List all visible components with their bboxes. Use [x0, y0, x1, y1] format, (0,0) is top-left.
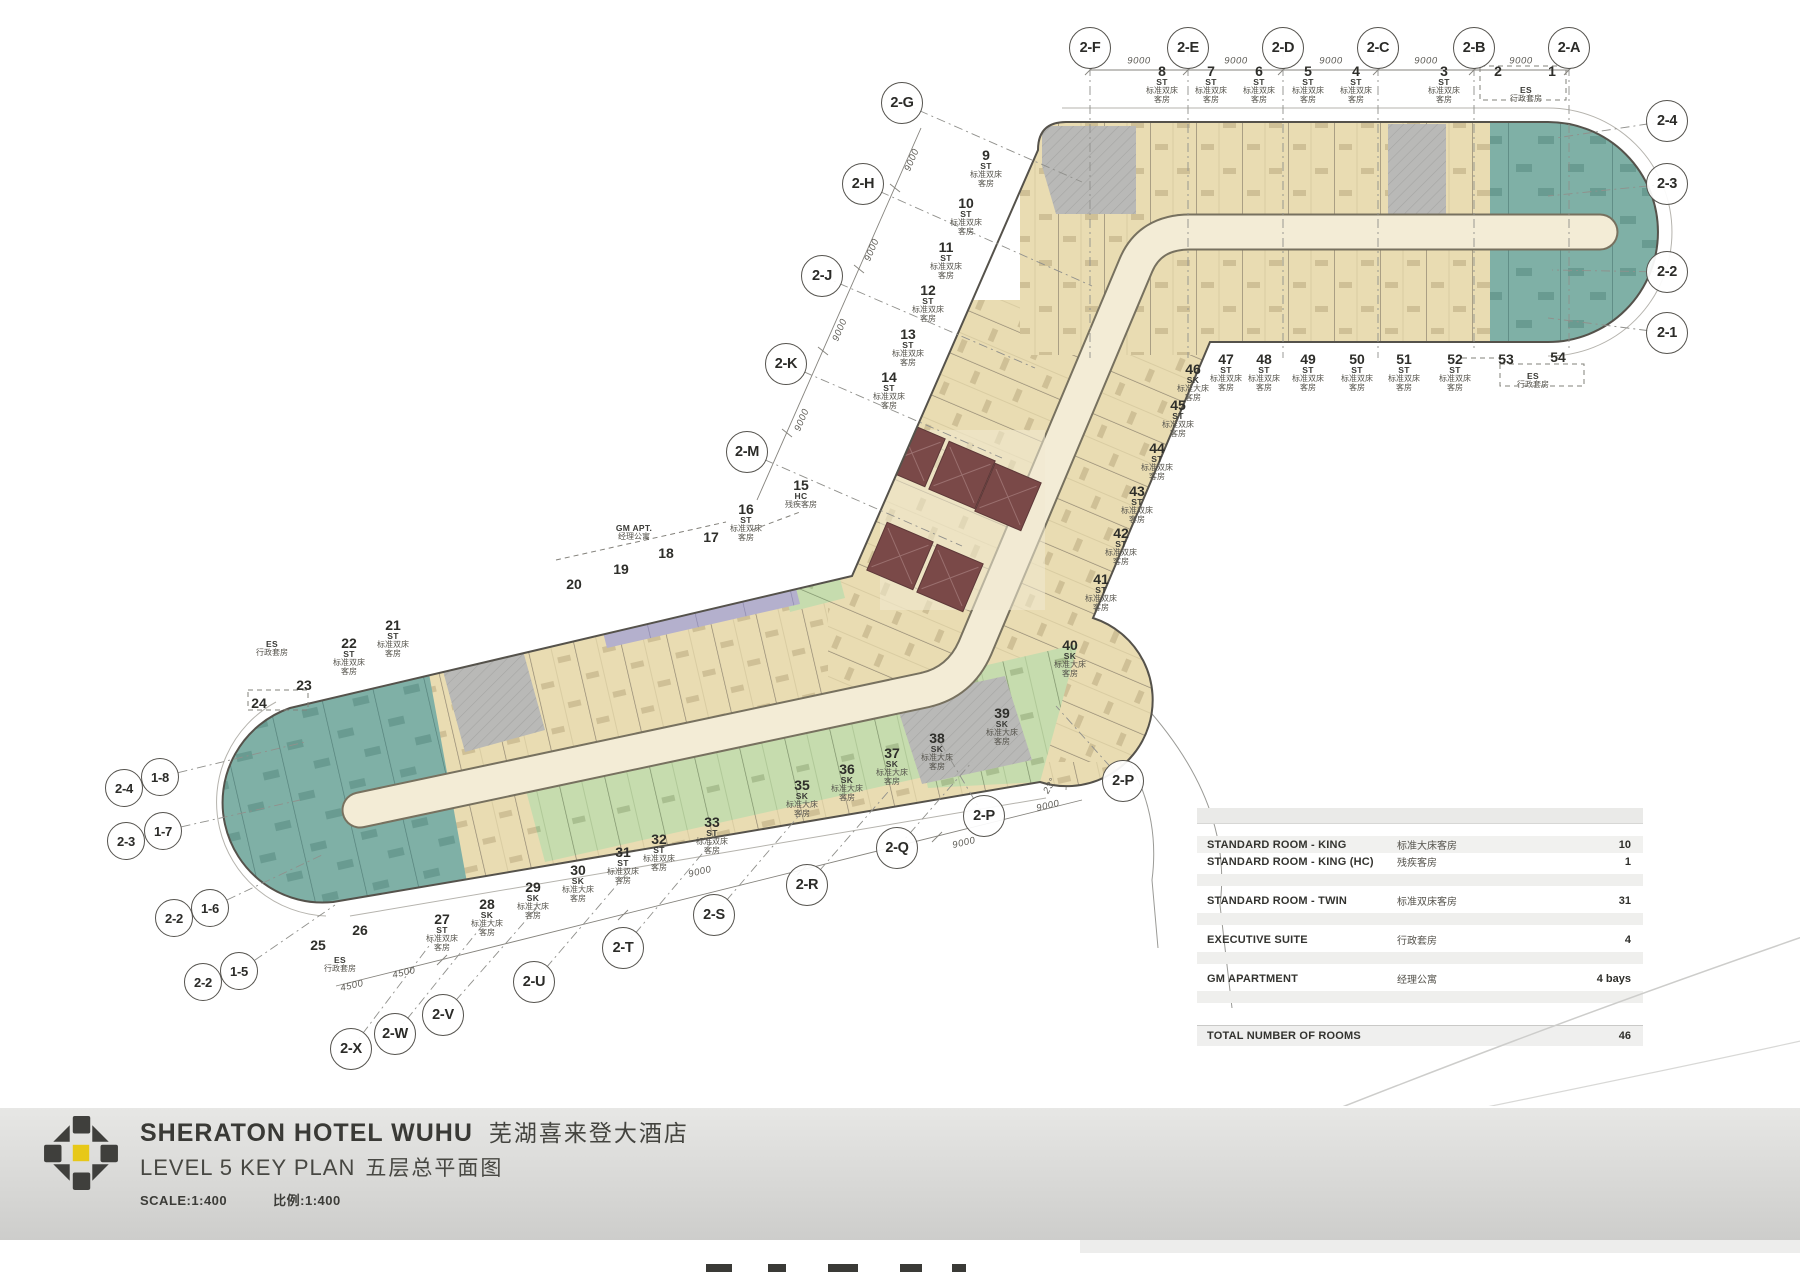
room-type-cn: 标准双床客房 [1425, 87, 1463, 105]
room-callout: 27ST标准双床客房 [423, 912, 461, 953]
room-callout: GM APT.经理公寓 [615, 524, 653, 541]
room-type-cn: 标准大床客房 [873, 769, 911, 787]
legend-room-type-en: STANDARD ROOM - TWIN [1207, 895, 1397, 907]
room-callout: 40SK标准大床客房 [1051, 638, 1089, 679]
room-callout: 9ST标准双床客房 [967, 148, 1005, 189]
room-callout: 18 [658, 546, 674, 560]
room-callout: 30SK标准大床客房 [559, 863, 597, 904]
room-number: 2 [1494, 64, 1502, 78]
room-callout: 6ST标准双床客房 [1240, 64, 1278, 105]
room-type-cn: 经理公寓 [615, 533, 653, 542]
room-number: 50 [1338, 352, 1376, 366]
room-number: 22 [330, 636, 368, 650]
room-callout: 21ST标准双床客房 [374, 618, 412, 659]
room-type-cn: 标准双床客房 [1289, 87, 1327, 105]
sheraton-logo-icon [42, 1114, 120, 1192]
grid-bubble: 2-4 [105, 769, 143, 807]
room-callout: 10ST标准双床客房 [947, 196, 985, 237]
room-number: 20 [566, 577, 582, 591]
room-number: 31 [604, 845, 642, 859]
grid-bubble: 2-3 [1646, 163, 1688, 205]
room-type-cn: 标准双床客房 [1245, 375, 1283, 393]
legend-header-band [1197, 808, 1643, 824]
dimension-text: 9000 [1509, 56, 1533, 67]
room-number: 13 [889, 327, 927, 341]
room-callout: 22ST标准双床客房 [330, 636, 368, 677]
room-callout: 36SK标准大床客房 [828, 762, 866, 803]
room-number: 49 [1289, 352, 1327, 366]
room-callout: 32ST标准双床客房 [640, 832, 678, 873]
legend-room-type-cn: 标准双床客房 [1397, 893, 1457, 908]
grid-bubble: 2-K [765, 343, 807, 385]
room-number: 23 [296, 678, 312, 692]
room-type-cn: 标准双床客房 [374, 641, 412, 659]
room-callout: 26 [352, 923, 368, 937]
room-callout: 54 [1550, 350, 1566, 364]
grid-bubble: 2-4 [1646, 100, 1688, 142]
room-number: 24 [251, 696, 267, 710]
room-callout: 11ST标准双床客房 [927, 240, 965, 281]
room-callout: 14ST标准双床客房 [870, 370, 908, 411]
room-type-cn: 标准双床客房 [423, 935, 461, 953]
grid-bubble: 2-1 [1646, 312, 1688, 354]
grid-bubble: 2-S [693, 894, 735, 936]
grid-bubble: 2-H [842, 163, 884, 205]
room-number: 25 [310, 938, 326, 952]
room-number: 28 [468, 897, 506, 911]
room-callout: ES行政套房 [321, 956, 359, 973]
room-callout: 38SK标准大床客房 [918, 731, 956, 772]
legend-room-type-cn: 标准大床客房 [1397, 837, 1457, 852]
room-type-cn: 标准双床客房 [1338, 375, 1376, 393]
elevator-cores [867, 419, 1045, 611]
room-number: 36 [828, 762, 866, 776]
room-type-cn: 标准双床客房 [1143, 87, 1181, 105]
room-number: 14 [870, 370, 908, 384]
room-callout: 24 [251, 696, 267, 710]
room-number: 26 [352, 923, 368, 937]
room-type-cn: 标准双床客房 [1159, 421, 1197, 439]
room-number: 47 [1207, 352, 1245, 366]
room-callout: 13ST标准双床客房 [889, 327, 927, 368]
room-callout: 50ST标准双床客房 [1338, 352, 1376, 393]
plan-name-en: LEVEL 5 KEY PLAN [140, 1155, 355, 1180]
grid-bubble: 2-2 [184, 963, 222, 1001]
room-callout: 28SK标准大床客房 [468, 897, 506, 938]
room-type-cn: 行政套房 [321, 965, 359, 974]
room-number: 15 [782, 478, 820, 492]
room-number: 42 [1102, 526, 1140, 540]
room-number: 29 [514, 880, 552, 894]
room-number: 54 [1550, 350, 1566, 364]
room-number: 11 [927, 240, 965, 254]
room-number: 43 [1118, 484, 1156, 498]
dimension-text: 9000 [1414, 56, 1438, 67]
logo-yellow-center [73, 1145, 89, 1161]
room-number: 19 [613, 562, 629, 576]
room-number: 21 [374, 618, 412, 632]
grid-bubble: 2-M [726, 431, 768, 473]
room-type-cn: 标准双床客房 [1102, 549, 1140, 567]
grid-bubble: 1-6 [191, 889, 229, 927]
room-type-cn: 标准大床客房 [918, 754, 956, 772]
room-number: 44 [1138, 441, 1176, 455]
room-callout: 43ST标准双床客房 [1118, 484, 1156, 525]
legend-room-type-en: STANDARD ROOM - KING (HC) [1207, 856, 1397, 868]
room-type-cn: 标准大床客房 [983, 729, 1021, 747]
title-block: SHERATON HOTEL WUHU芜湖喜来登大酒店 LEVEL 5 KEY … [42, 1114, 689, 1209]
legend-spacer-band [1197, 874, 1643, 886]
room-type-cn: 标准大床客房 [559, 886, 597, 904]
room-callout: 33ST标准双床客房 [693, 815, 731, 856]
room-callout: 15HC残疾客房 [782, 478, 820, 510]
room-callout: 41ST标准双床客房 [1082, 572, 1120, 613]
room-type-cn: 标准双床客房 [1082, 595, 1120, 613]
room-callout: 29SK标准大床客房 [514, 880, 552, 921]
room-callout: 47ST标准双床客房 [1207, 352, 1245, 393]
grid-bubble: 2-B [1453, 27, 1495, 69]
room-number: 12 [909, 283, 947, 297]
room-number: 17 [703, 530, 719, 544]
room-callout: 12ST标准双床客房 [909, 283, 947, 324]
room-type-cn: 标准双床客房 [1192, 87, 1230, 105]
room-type-cn: 标准大床客房 [783, 801, 821, 819]
room-number: 39 [983, 706, 1021, 720]
room-type-cn: 行政套房 [1514, 381, 1552, 390]
room-type-cn: 标准双床客房 [1436, 375, 1474, 393]
grid-bubble: 2-T [602, 927, 644, 969]
room-callout: 39SK标准大床客房 [983, 706, 1021, 747]
grid-bubble: 2-C [1357, 27, 1399, 69]
room-callout: 37SK标准大床客房 [873, 746, 911, 787]
legend-row: STANDARD ROOM - KING标准大床客房10 [1197, 836, 1643, 853]
grid-bubble: 2-P [963, 795, 1005, 837]
grid-bubble: 2-R [786, 864, 828, 906]
grid-bubble: 2-P [1102, 760, 1144, 802]
room-number: 10 [947, 196, 985, 210]
room-callout: 4ST标准双床客房 [1337, 64, 1375, 105]
room-type-cn: 标准双床客房 [1385, 375, 1423, 393]
room-type-cn: 标准双床客房 [693, 838, 731, 856]
grid-bubble: 2-G [881, 82, 923, 124]
room-number: 35 [783, 778, 821, 792]
room-type-cn: 标准大床客房 [828, 785, 866, 803]
room-callout: 44ST标准双床客房 [1138, 441, 1176, 482]
service-zone-elbow [1042, 126, 1136, 214]
room-number: 53 [1498, 352, 1514, 366]
grid-bubble: 2-2 [1646, 251, 1688, 293]
room-callout: 42ST标准双床客房 [1102, 526, 1140, 567]
room-number: 40 [1051, 638, 1089, 652]
room-number: 48 [1245, 352, 1283, 366]
room-callout: 25 [310, 938, 326, 952]
room-number: 52 [1436, 352, 1474, 366]
room-callout: 5ST标准双床客房 [1289, 64, 1327, 105]
dimension-text: 9000 [1127, 56, 1151, 67]
room-type-cn: 标准大床客房 [514, 903, 552, 921]
grid-bubble: 2-3 [107, 822, 145, 860]
room-type-cn: 残疾客房 [782, 501, 820, 510]
room-number: 32 [640, 832, 678, 846]
grid-bubble: 2-D [1262, 27, 1304, 69]
room-type-cn: 标准双床客房 [870, 393, 908, 411]
room-type-cn: 行政套房 [253, 649, 291, 658]
room-type-cn: 标准双床客房 [947, 219, 985, 237]
room-type-cn: 标准双床客房 [1118, 507, 1156, 525]
room-number: 18 [658, 546, 674, 560]
room-type-cn: 标准双床客房 [1289, 375, 1327, 393]
room-callout: 35SK标准大床客房 [783, 778, 821, 819]
room-number: 30 [559, 863, 597, 877]
grid-bubble: 2-2 [155, 899, 193, 937]
room-number: 41 [1082, 572, 1120, 586]
room-number: 37 [873, 746, 911, 760]
room-type-cn: 标准大床客房 [468, 920, 506, 938]
room-number: 38 [918, 731, 956, 745]
room-callout: 3ST标准双床客房 [1425, 64, 1463, 105]
room-callout: 48ST标准双床客房 [1245, 352, 1283, 393]
room-callout: 31ST标准双床客房 [604, 845, 642, 886]
room-callout: 20 [566, 577, 582, 591]
legend-room-count: 10 [1619, 839, 1631, 851]
room-callout: 8ST标准双床客房 [1143, 64, 1181, 105]
room-number: 27 [423, 912, 461, 926]
room-callout: 51ST标准双床客房 [1385, 352, 1423, 393]
room-callout: 45ST标准双床客房 [1159, 398, 1197, 439]
grid-bubble: 2-E [1167, 27, 1209, 69]
room-callout: 7ST标准双床客房 [1192, 64, 1230, 105]
room-type-cn: 标准双床客房 [330, 659, 368, 677]
room-callout: ES行政套房 [1514, 372, 1552, 389]
room-number: 9 [967, 148, 1005, 162]
grid-bubble: 2-U [513, 961, 555, 1003]
stair-zone-top-wing [1388, 124, 1446, 216]
room-type-cn: 标准双床客房 [727, 525, 765, 543]
room-callout: 2 [1494, 64, 1502, 78]
grid-bubble: 2-V [422, 994, 464, 1036]
room-number: 16 [727, 502, 765, 516]
room-number: 1 [1548, 64, 1556, 78]
drawing-sheet: 2-F2-E2-D2-C2-B2-A2-42-32-22-12-G2-H2-J2… [0, 0, 1800, 1272]
legend-room-type-cn: 残疾客房 [1397, 854, 1437, 869]
room-type-cn: 标准双床客房 [1207, 375, 1245, 393]
grid-bubble: 2-J [801, 255, 843, 297]
room-type-cn: 标准双床客房 [1138, 464, 1176, 482]
hotel-name-en: SHERATON HOTEL WUHU [140, 1119, 473, 1147]
grid-bubble: 1-8 [141, 758, 179, 796]
room-number: 45 [1159, 398, 1197, 412]
room-type-cn: 标准双床客房 [967, 171, 1005, 189]
room-type-cn: 标准双床客房 [604, 868, 642, 886]
dimension-text: 9000 [1319, 56, 1343, 67]
legend-row: STANDARD ROOM - KING (HC)残疾客房1 [1197, 853, 1643, 870]
grid-bubble: 2-W [374, 1013, 416, 1055]
room-type-cn: 标准双床客房 [1240, 87, 1278, 105]
room-callout: 49ST标准双床客房 [1289, 352, 1327, 393]
room-callout: 17 [703, 530, 719, 544]
plan-name-cn: 五层总平面图 [365, 1157, 503, 1180]
room-callout: ES行政套房 [1507, 86, 1545, 103]
dimension-text: 9000 [1224, 56, 1248, 67]
scale-label-en: SCALE:1:400 [140, 1193, 227, 1208]
room-number: 51 [1385, 352, 1423, 366]
grid-bubble: 1-7 [144, 812, 182, 850]
room-callout: ES行政套房 [253, 640, 291, 657]
room-callout: 23 [296, 678, 312, 692]
room-callout: 52ST标准双床客房 [1436, 352, 1474, 393]
room-type-cn: 标准大床客房 [1051, 661, 1089, 679]
grid-bubble: 2-F [1069, 27, 1111, 69]
hotel-name-cn: 芜湖喜来登大酒店 [489, 1120, 689, 1146]
room-type-cn: 标准双床客房 [909, 306, 947, 324]
room-type-cn: 标准双床客房 [889, 350, 927, 368]
legend-room-type-en: STANDARD ROOM - KING [1207, 839, 1397, 851]
grid-bubble: 2-Q [876, 827, 918, 869]
legend-room-count: 31 [1619, 895, 1631, 907]
room-callout: 19 [613, 562, 629, 576]
legend-row: STANDARD ROOM - TWIN标准双床客房31 [1197, 892, 1643, 909]
grid-bubble: 2-X [330, 1028, 372, 1070]
grid-bubble: 1-5 [220, 952, 258, 990]
room-type-cn: 标准双床客房 [927, 263, 965, 281]
room-type-cn: 标准双床客房 [640, 855, 678, 873]
room-type-cn: 行政套房 [1507, 95, 1545, 104]
room-number: 33 [693, 815, 731, 829]
room-callout: 53 [1498, 352, 1514, 366]
legend-room-count: 1 [1625, 856, 1631, 868]
room-type-cn: 标准双床客房 [1337, 87, 1375, 105]
room-callout: 1 [1548, 64, 1556, 78]
room-callout: 16ST标准双床客房 [727, 502, 765, 543]
scale-label-cn: 比例:1:400 [273, 1193, 341, 1208]
